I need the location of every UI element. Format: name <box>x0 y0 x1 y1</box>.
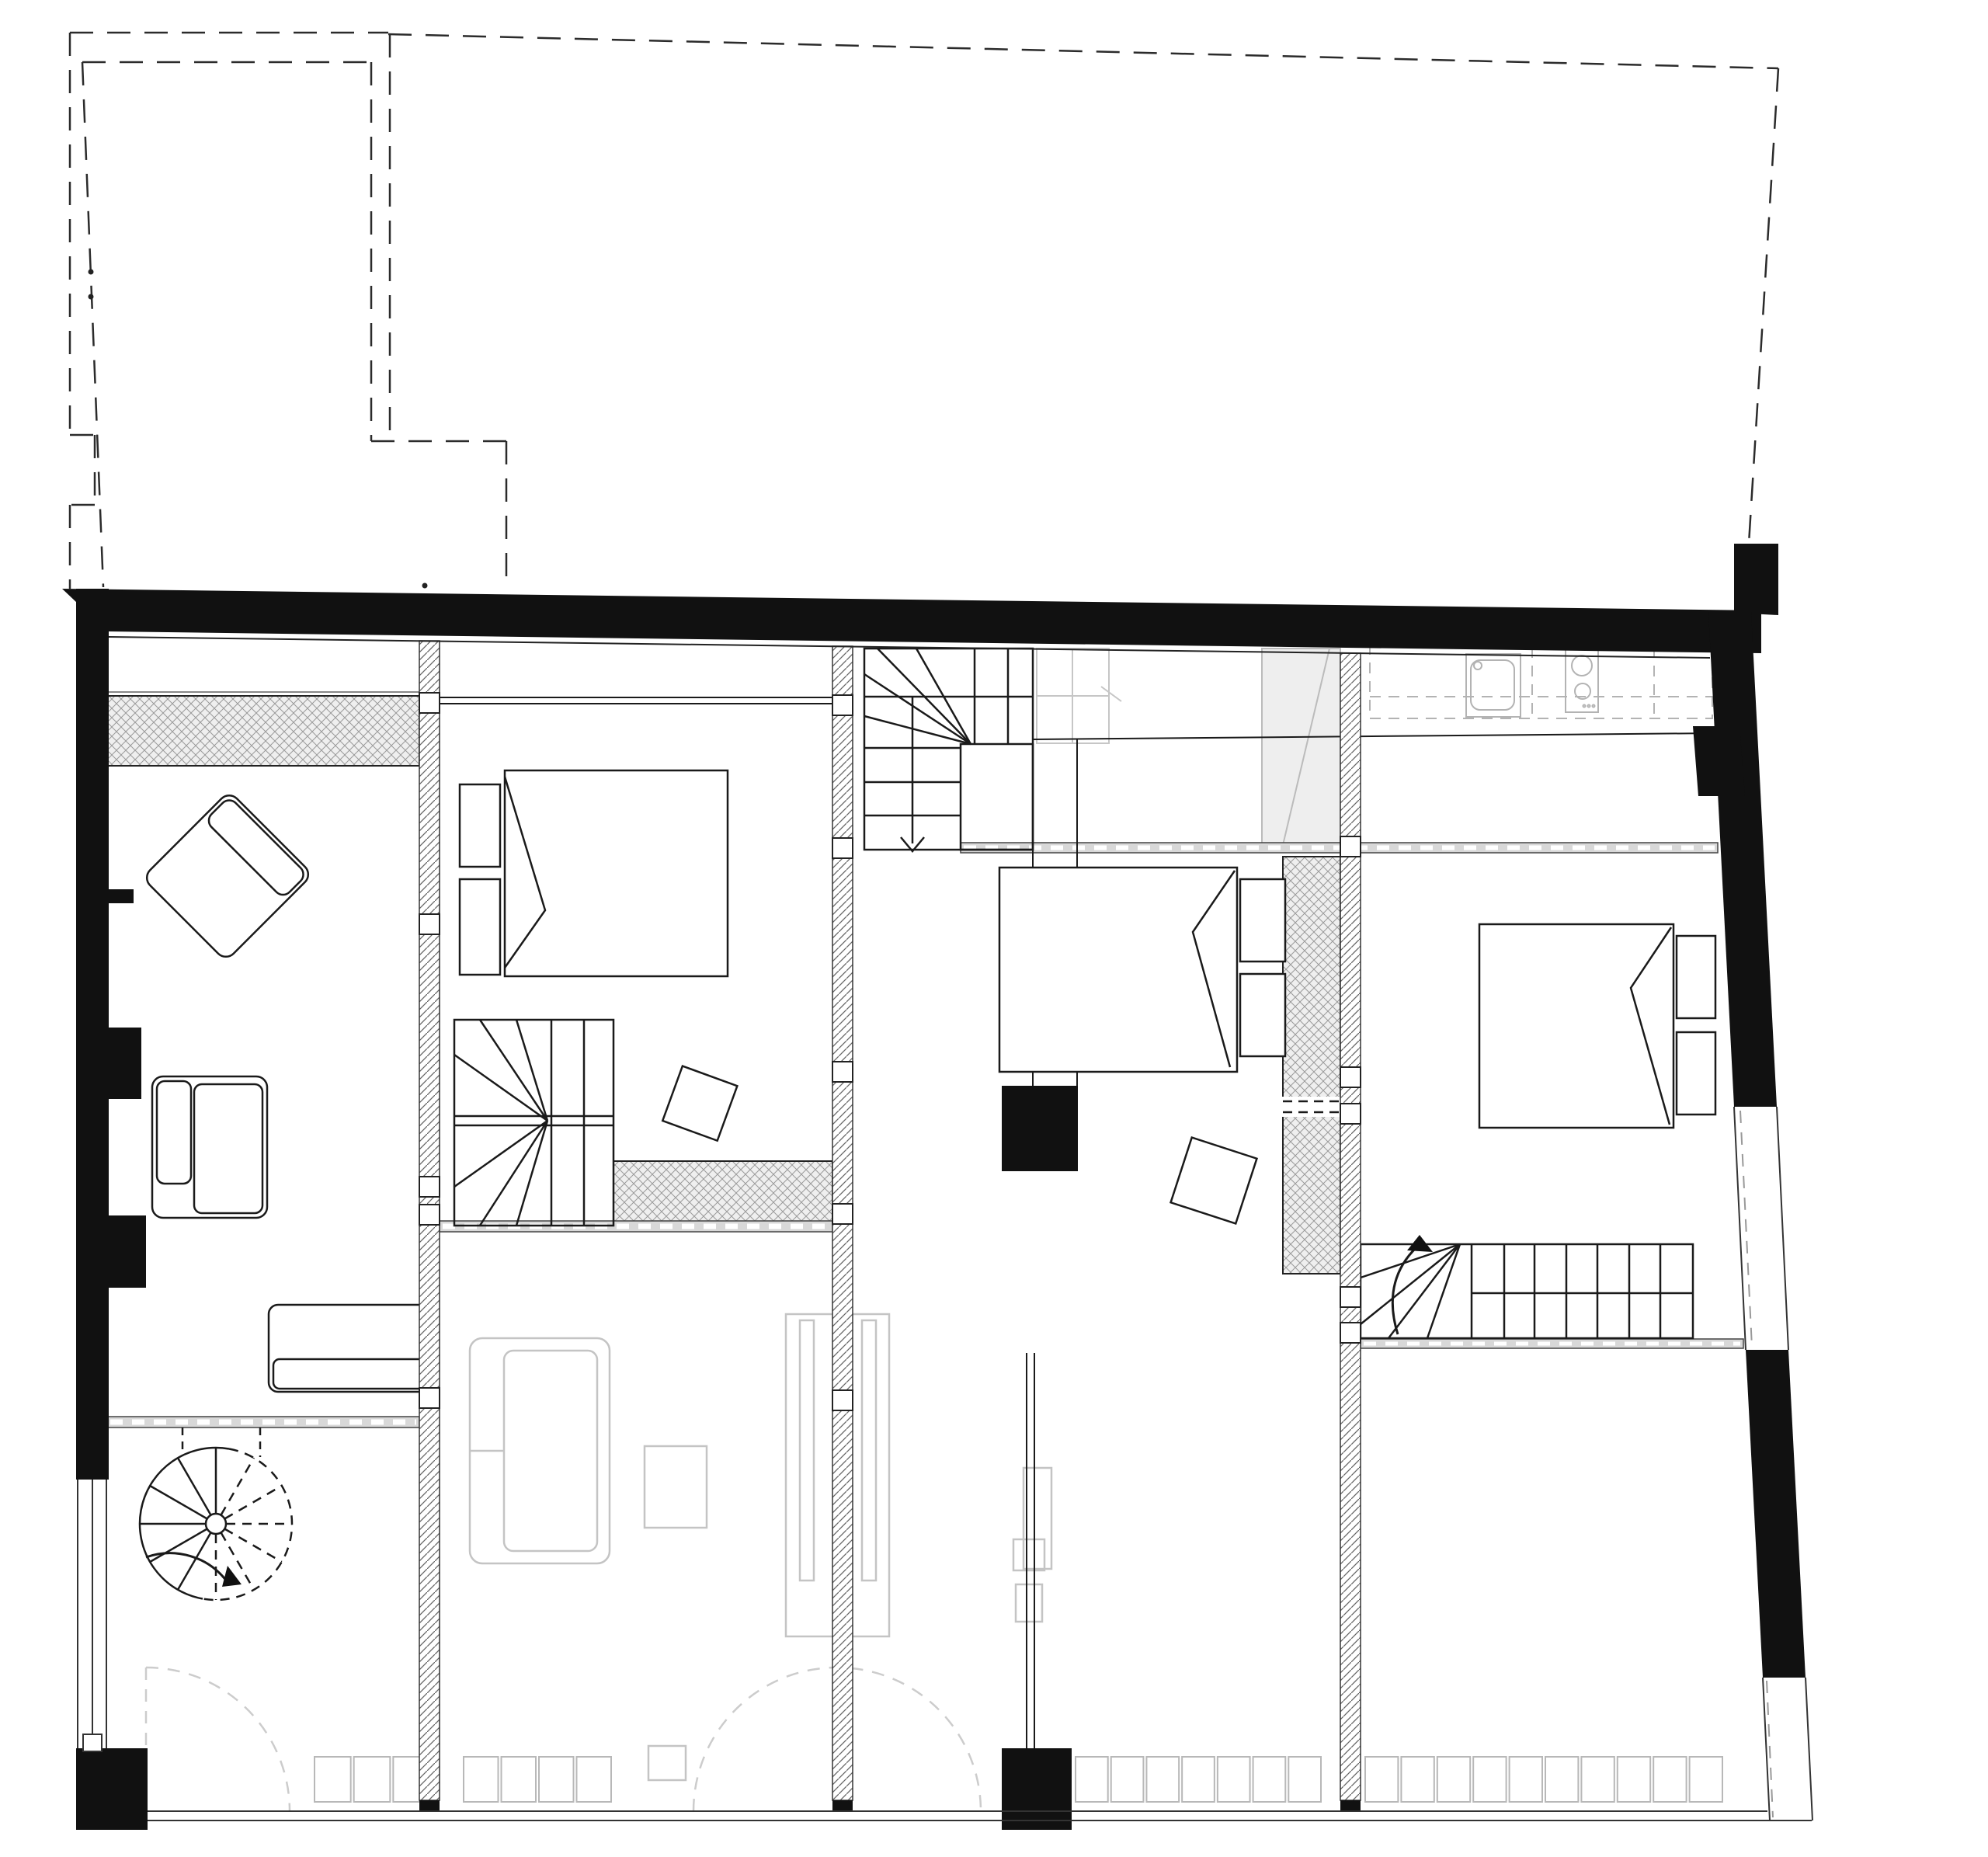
nightstand <box>460 879 500 975</box>
kitchen-faucet <box>1474 662 1482 669</box>
radiator <box>1365 1757 1722 1802</box>
stair-right-winder <box>1361 1244 1460 1324</box>
boundary-dot <box>89 270 94 275</box>
window-right-upper <box>1777 1107 1788 1350</box>
radiator-cell <box>1365 1757 1398 1802</box>
floor-plan-page <box>0 0 1988 1857</box>
spiral-staircase <box>140 1448 292 1600</box>
wall-connector-square <box>419 1177 440 1197</box>
site-boundary <box>70 33 1778 589</box>
nightstand <box>1677 936 1715 1018</box>
party-wall-right <box>1340 653 1361 1800</box>
radiator <box>315 1757 429 1802</box>
party-wall-foot <box>1340 1800 1361 1811</box>
wall-connector-square <box>1340 1104 1361 1124</box>
radiator-cell <box>502 1757 537 1802</box>
spiral-tread <box>178 1532 211 1590</box>
wall-left-pier <box>107 1028 141 1099</box>
stair-mid-winder <box>516 1020 547 1121</box>
skylight-tick <box>1101 687 1121 701</box>
sofa-below-seat <box>504 1351 597 1551</box>
bench-sofa-seat <box>273 1359 426 1389</box>
media-shelf-below <box>800 1320 814 1581</box>
radiator-cell <box>539 1757 574 1802</box>
chimney-block <box>1002 1086 1078 1171</box>
radiator-cell <box>1288 1757 1321 1802</box>
window-right-dash <box>1740 1111 1752 1347</box>
radiator-cell <box>1545 1757 1578 1802</box>
radiator-cell <box>1473 1757 1506 1802</box>
wall-left-stub <box>107 889 134 903</box>
kitchen-stove <box>1566 649 1598 712</box>
party-wall-foot <box>419 1800 440 1811</box>
wall-connector-square <box>419 693 440 713</box>
window-right-upper <box>1734 1107 1746 1350</box>
low-wall-crosshatch <box>107 696 419 766</box>
radiator <box>1076 1757 1321 1802</box>
spiral-tread <box>178 1458 211 1515</box>
glazed-partition <box>961 843 1718 853</box>
radiator-cell <box>1618 1757 1650 1802</box>
bed-room3 <box>999 868 1237 1072</box>
wall-connector-square <box>832 695 853 715</box>
stair-mid-winder <box>516 1121 547 1226</box>
boundary-dot <box>89 294 94 300</box>
spiral-tread <box>224 1529 282 1563</box>
stair-mid-winder <box>480 1121 547 1226</box>
wardrobe-door-gap <box>1281 1097 1342 1117</box>
wall-left <box>76 589 109 1480</box>
wall-left-pier <box>107 1215 146 1288</box>
radiator-cell <box>1111 1757 1144 1802</box>
floor-plan-svg <box>0 0 1988 1857</box>
spiral-tread <box>221 1458 255 1515</box>
stair-top-winder <box>864 716 971 744</box>
desk-below <box>1024 1468 1051 1569</box>
media-shelf-below <box>862 1320 876 1581</box>
radiator-cell <box>1690 1757 1722 1802</box>
spiral-arrowhead <box>222 1566 242 1587</box>
partitions <box>107 583 1743 1749</box>
low-wall-crosshatch <box>613 1161 832 1226</box>
cabinet-below <box>1016 1584 1042 1622</box>
nightstand <box>1240 879 1285 962</box>
wall-connector-square <box>419 1205 440 1225</box>
wall-connector-square <box>1340 1067 1361 1087</box>
window-connector <box>83 1734 102 1751</box>
radiator <box>464 1757 611 1802</box>
stair-top-winder <box>864 674 971 744</box>
chaise-sofa-seat <box>194 1084 262 1213</box>
boundary-top-long <box>388 34 1778 68</box>
wall-connector-square <box>419 914 440 934</box>
wall-right-pier <box>1693 726 1745 796</box>
wall-corner-block <box>1734 544 1778 615</box>
stove-knob <box>1583 705 1586 708</box>
radiator-cell <box>577 1757 612 1802</box>
nightstand <box>1677 1032 1715 1115</box>
radiator-cell <box>354 1757 391 1802</box>
nightstand <box>460 784 500 867</box>
shaft-void <box>1262 649 1340 845</box>
nightstand <box>1240 974 1285 1056</box>
spiral-tread <box>224 1486 282 1519</box>
chair-below <box>1013 1539 1044 1570</box>
stair-top-landing <box>961 744 1033 850</box>
pier-bottom-mid <box>1002 1748 1072 1830</box>
boundary-inner-left <box>82 62 103 587</box>
window-right-lower <box>1806 1678 1812 1820</box>
stove-knob <box>1593 705 1595 708</box>
party-wall-left <box>419 641 440 1800</box>
wall-right-upper <box>1708 612 1777 1107</box>
boundary-right <box>1749 68 1778 544</box>
wall-top <box>62 589 1761 653</box>
stairs <box>140 649 1693 1600</box>
tv-unit-below <box>645 1446 707 1528</box>
radiator-cell <box>1076 1757 1108 1802</box>
radiator-cell <box>1510 1757 1542 1802</box>
radiator-cell <box>1437 1757 1470 1802</box>
corridor-line <box>1033 733 1715 739</box>
spiral-tread <box>150 1529 207 1563</box>
window-right-dash <box>1767 1681 1773 1817</box>
stair-right-outline <box>1361 1244 1693 1338</box>
stair-mid-winder <box>480 1020 547 1121</box>
pier-bottom-left <box>76 1748 148 1830</box>
party-wall-foot <box>832 1800 853 1811</box>
spiral-newel-post <box>206 1514 226 1534</box>
wall-connector-square <box>1340 836 1361 857</box>
survey-dot <box>422 583 428 589</box>
wall-connector-square <box>832 1062 853 1082</box>
radiator-cell <box>1182 1757 1215 1802</box>
glazed-partition <box>1361 1339 1743 1348</box>
radiator-cell <box>1653 1757 1686 1802</box>
side-table-below <box>648 1746 686 1780</box>
window-right-lower <box>1763 1678 1770 1820</box>
radiator-cell <box>1146 1757 1179 1802</box>
glazed-partition <box>107 1417 419 1428</box>
radiator-cell <box>315 1757 351 1802</box>
wall-connector-square <box>419 1388 440 1408</box>
furniture <box>142 770 1715 1392</box>
party-wall-right-hatch <box>1340 653 1361 1800</box>
radiator-cell <box>1581 1757 1614 1802</box>
stove-knob <box>1588 705 1590 708</box>
party-wall-mid <box>832 646 853 1800</box>
radiator-cell <box>464 1757 499 1802</box>
radiator-cell <box>1218 1757 1250 1802</box>
stair-mid-outline <box>454 1020 613 1226</box>
wall-connector-square <box>832 1204 853 1224</box>
chaise-sofa-arm <box>157 1081 191 1184</box>
floor-plan-root <box>62 33 1812 1830</box>
spiral-tread <box>150 1486 207 1519</box>
wall-right-lower <box>1746 1350 1806 1678</box>
window-walls <box>78 1107 1812 1820</box>
radiator-cell <box>1253 1757 1286 1802</box>
stair-mid-winder <box>454 1121 547 1187</box>
wall-connector-square <box>832 838 853 858</box>
bed-room4 <box>1479 924 1673 1128</box>
bed-room2 <box>505 770 728 976</box>
wall-connector-square <box>832 1390 853 1410</box>
below-floor-gray <box>146 649 1722 1811</box>
kitchen-sink-bowl <box>1471 660 1514 710</box>
wall-connector-square <box>1340 1287 1361 1307</box>
door-swing-arc <box>146 1667 290 1811</box>
stove-burner <box>1572 656 1592 676</box>
wardrobe-crosshatch <box>1283 857 1340 1274</box>
wall-connector-square <box>1340 1323 1361 1343</box>
pouf-rotated <box>662 1066 737 1141</box>
stair-mid-winder <box>454 1055 547 1121</box>
pouf-rotated <box>1171 1138 1257 1224</box>
radiator-cell <box>1401 1757 1434 1802</box>
stair-right-winder <box>1388 1244 1460 1338</box>
